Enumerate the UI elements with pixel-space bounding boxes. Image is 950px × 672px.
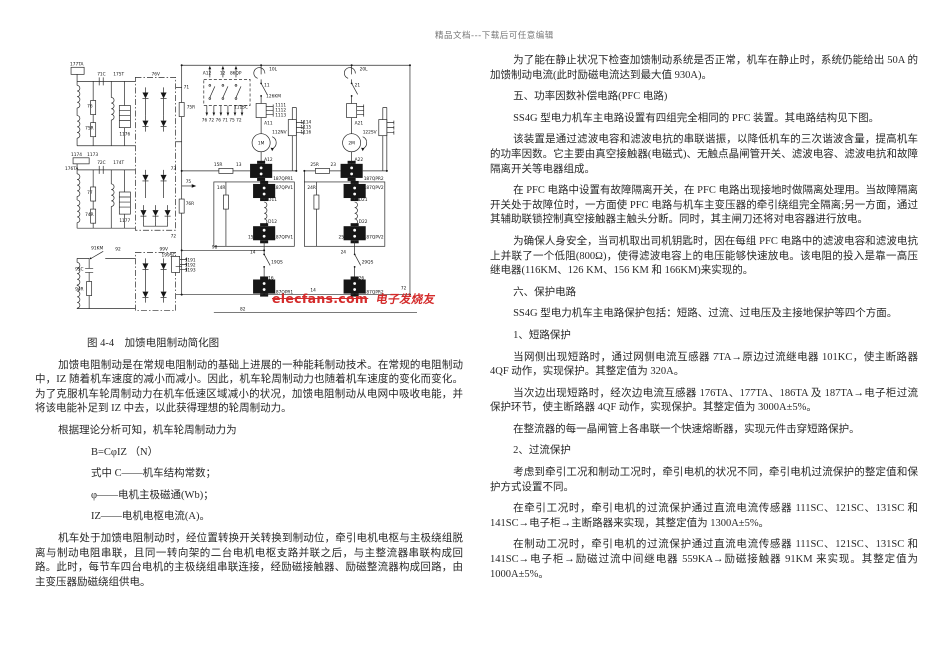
svg-text:82: 82 bbox=[240, 307, 246, 313]
svg-text:A21: A21 bbox=[355, 121, 364, 127]
svg-text:D22: D22 bbox=[359, 219, 368, 225]
svg-text:76V: 76V bbox=[152, 71, 160, 77]
svg-text:75R: 75R bbox=[187, 105, 195, 111]
svg-text:10L: 10L bbox=[269, 66, 277, 72]
paragraph: SS4G 型电力机车主电路设置有四组完全相同的 PFC 装置。其电路结构见下图。 bbox=[490, 112, 918, 127]
svg-text:D11: D11 bbox=[268, 197, 277, 203]
svg-text:175T: 175T bbox=[113, 71, 124, 77]
svg-text:26: 26 bbox=[359, 275, 365, 281]
svg-text:174T: 174T bbox=[113, 160, 124, 166]
svg-text:20L: 20L bbox=[360, 66, 368, 72]
svg-text:24: 24 bbox=[341, 249, 347, 255]
svg-text:77: 77 bbox=[87, 190, 93, 196]
circuit-diagram: 177TA71C175T7675R117611741173176TA72C174… bbox=[63, 56, 417, 328]
svg-text:76R: 76R bbox=[186, 201, 194, 207]
svg-text:D12: D12 bbox=[268, 219, 277, 225]
svg-text:91KM: 91KM bbox=[91, 245, 103, 251]
svg-text:2M: 2M bbox=[348, 141, 355, 147]
elecfans-brand: elecfans.com bbox=[272, 291, 368, 306]
formula-line: φ——电机主极磁通(Wb)； bbox=[35, 489, 463, 504]
svg-text:75: 75 bbox=[186, 179, 192, 185]
transformer-group-2 bbox=[73, 158, 135, 228]
paragraph: 根据理论分析可知，机车轮周制动力为 bbox=[35, 424, 463, 439]
svg-text:A12: A12 bbox=[264, 157, 273, 163]
paragraph: 在整流器的每一晶闸管上各串联一个快速熔断器，实现元件击穿短路保护。 bbox=[490, 423, 918, 438]
paragraph: 机车处于加馈电阻制动时，经位置转换开关转换到制动位，牵引电机电枢与主极绕组脱离与… bbox=[35, 532, 463, 590]
paragraph: 当次边出现短路时，经次边电流互感器 176TA、177TA、186TA 及 18… bbox=[490, 387, 918, 416]
svg-text:74R: 74R bbox=[85, 212, 93, 218]
svg-text:187QPR2: 187QPR2 bbox=[364, 176, 384, 182]
paragraph: 加馈电阻制动是在常规电阻制动的基础上进展的一种能耗制动技术。在常规的电阻制动中，… bbox=[35, 359, 463, 417]
circuit-figure: 177TA71C175T7675R117611741173176TA72C174… bbox=[63, 56, 417, 328]
svg-text:187QPV1: 187QPV1 bbox=[273, 234, 293, 240]
paragraph: 考虑到牵引工况和制动工况时，牵引电机的状况不同，牵引电机过流保护的整定值和保护方… bbox=[490, 466, 918, 495]
svg-text:1M: 1M bbox=[258, 141, 265, 147]
svg-text:29QS: 29QS bbox=[362, 259, 374, 265]
document-watermark: 精品文档---下载后可任意编辑 bbox=[435, 29, 554, 41]
left-column-text: 图 4-4 加馈电阻制动简化图加馈电阻制动是在常规电阻制动的基础上进展的一种能耗… bbox=[35, 337, 463, 590]
svg-text:187QPR1: 187QPR1 bbox=[273, 176, 293, 182]
svg-text:72C: 72C bbox=[97, 160, 106, 166]
right-column: 为了能在静止状况下检查加馈制动系统是否正常，机车在静止时，系统仍能给出 50A … bbox=[490, 47, 918, 589]
elecfans-cn: 电子发烧友 bbox=[375, 293, 437, 308]
svg-text:1113: 1113 bbox=[275, 113, 286, 119]
svg-text:16: 16 bbox=[268, 275, 274, 281]
svg-text:11: 11 bbox=[264, 82, 270, 88]
svg-text:23: 23 bbox=[331, 162, 337, 168]
svg-text:A22: A22 bbox=[355, 157, 364, 163]
formula-line: B=CφIZ （N） bbox=[35, 446, 463, 461]
svg-text:1116: 1116 bbox=[300, 130, 311, 136]
svg-text:1173: 1173 bbox=[87, 152, 98, 158]
svg-text:176TA: 176TA bbox=[65, 166, 79, 172]
svg-text:1177: 1177 bbox=[119, 218, 130, 224]
paragraph: 当网侧出现短路时，通过网侧电流互感器 7TA→原边过流继电器 101KC，使主断… bbox=[490, 351, 918, 380]
svg-text:12: 12 bbox=[220, 70, 226, 76]
svg-text:75R: 75R bbox=[85, 126, 93, 132]
paragraph: 在牵引工况时，牵引电机的过流保护通过直流电流传感器 111SC、121SC、13… bbox=[490, 502, 918, 531]
svg-text:D21: D21 bbox=[359, 197, 368, 203]
svg-text:1176: 1176 bbox=[119, 132, 130, 138]
svg-text:24R: 24R bbox=[307, 185, 315, 191]
paragraph: 该装置是通过滤波电容和滤波电抗的串联谐振，以降低机车的三次谐波含量，提高机车的功… bbox=[490, 133, 918, 177]
left-column: 177TA71C175T7675R117611741173176TA72C174… bbox=[35, 50, 463, 597]
motor-branch-1 bbox=[182, 65, 304, 181]
svg-text:93C: 93C bbox=[75, 266, 84, 272]
svg-text:15R: 15R bbox=[214, 162, 222, 168]
svg-text:A12: A12 bbox=[203, 70, 212, 76]
paragraph: 六、保护电路 bbox=[490, 286, 918, 301]
svg-text:187QPV2: 187QPV2 bbox=[364, 185, 384, 191]
formula-line: 式中 C——机车结构常数； bbox=[35, 467, 463, 482]
svg-text:71C: 71C bbox=[97, 71, 106, 77]
figure-caption: 图 4-4 加馈电阻制动简化图 bbox=[35, 337, 463, 352]
svg-text:13: 13 bbox=[236, 162, 242, 168]
svg-text:19QS: 19QS bbox=[271, 259, 283, 265]
svg-text:25R: 25R bbox=[310, 162, 318, 168]
paragraph: 2、过流保护 bbox=[490, 444, 918, 459]
svg-text:25: 25 bbox=[339, 234, 345, 240]
svg-text:122SV: 122SV bbox=[363, 130, 377, 136]
svg-text:92: 92 bbox=[115, 246, 121, 252]
svg-text:111SC: 111SC bbox=[234, 105, 248, 111]
svg-text:72: 72 bbox=[171, 233, 177, 239]
svg-text:126KM: 126KM bbox=[266, 93, 281, 99]
svg-text:99V: 99V bbox=[160, 246, 168, 252]
svg-text:187QPV1: 187QPV1 bbox=[273, 185, 293, 191]
svg-text:15: 15 bbox=[248, 234, 254, 240]
paragraph: 为确保人身安全，当司机取出司机钥匙时，因在每组 PFC 电路中的滤波电容和滤波电… bbox=[490, 235, 918, 279]
svg-text:76 72 76 71 75 72: 76 72 76 71 75 72 bbox=[202, 118, 242, 124]
paragraph: 为了能在静止状况下检查加馈制动系统是否正常，机车在静止时，系统仍能给出 50A … bbox=[490, 54, 918, 83]
svg-text:94R: 94R bbox=[75, 287, 83, 293]
svg-text:98: 98 bbox=[212, 244, 218, 250]
svg-text:177TA: 177TA bbox=[70, 61, 84, 67]
rectifier-bridge-76V bbox=[135, 77, 175, 230]
svg-text:73: 73 bbox=[171, 166, 177, 172]
paragraph: 1、短路保护 bbox=[490, 329, 918, 344]
paragraph: 在 PFC 电路中设置有故障隔离开关，在 PFC 电路出现接地时做隔离处理用。当… bbox=[490, 184, 918, 228]
svg-text:76: 76 bbox=[87, 104, 93, 110]
svg-text:1193: 1193 bbox=[185, 267, 196, 273]
svg-text:14R: 14R bbox=[217, 185, 225, 191]
formula-line: IZ——电机电枢电流(A)。 bbox=[35, 510, 463, 525]
svg-text:72: 72 bbox=[401, 286, 407, 292]
svg-text:A11: A11 bbox=[264, 121, 273, 127]
paragraph: SS4G 型电力机车主电路保护包括：短路、过流、过电压及主接地保护等四个方面。 bbox=[490, 307, 918, 322]
svg-text:199SC: 199SC bbox=[162, 252, 176, 258]
svg-text:86QP: 86QP bbox=[230, 70, 242, 76]
rectifier-bridge-99V bbox=[135, 252, 186, 310]
svg-text:112NV: 112NV bbox=[272, 130, 286, 136]
transformer-group-3 bbox=[77, 251, 135, 308]
elecfans-watermark: elecfans.com电子发烧友 bbox=[272, 292, 435, 308]
svg-text:187QPV2: 187QPV2 bbox=[364, 234, 384, 240]
paragraph: 五、功率因数补偿电路(PFC 电路) bbox=[490, 90, 918, 105]
svg-text:71: 71 bbox=[184, 84, 190, 90]
svg-text:1174: 1174 bbox=[71, 152, 82, 158]
paragraph: 在制动工况时，牵引电机的过流保护通过直流电流传感器 111SC、121SC、13… bbox=[490, 538, 918, 582]
svg-text:14: 14 bbox=[250, 249, 256, 255]
svg-text:21: 21 bbox=[355, 82, 361, 88]
